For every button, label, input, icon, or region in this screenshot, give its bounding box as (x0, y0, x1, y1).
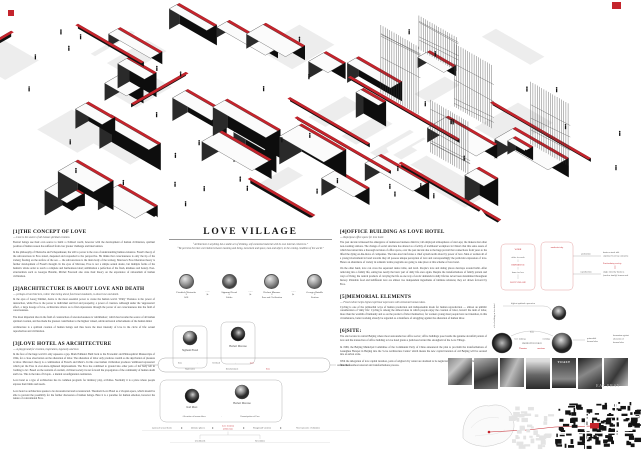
flow-person-name: Karl Marx (187, 406, 199, 409)
flow-person-name: Herbert Marcuse (233, 402, 251, 405)
body-paragraph: Cycling is one of the primordial ways of… (340, 306, 487, 322)
section-subtitle: --- A playground for creation, inspirati… (13, 348, 155, 351)
body-paragraph: Eternal beings use their own source to b… (13, 241, 155, 249)
toast-poster-photo: TOAST (552, 358, 576, 388)
flow-label: PRODUCTIVE FORCE (522, 343, 542, 345)
flow-label: production (581, 254, 591, 256)
arrow-right-icon: → (196, 363, 198, 365)
section-love-and-death: [2]ARCHITECTURE IS ABOUT LOVE AND DEATH … (13, 286, 155, 334)
presentation-board: [1]THE CONCEPT OF LOVE --- Love is the s… (0, 0, 641, 452)
concept-flowchart: Sigmund Freud Herbert Marcuse Eros → Civ… (140, 316, 352, 452)
film-still-photo (526, 358, 550, 389)
side-label: office building as love hotel (493, 303, 496, 328)
flow-label: Repression (185, 368, 196, 370)
flow-label: Playground vacation (253, 427, 272, 430)
body-paragraph: In the face of the huge world it only sq… (13, 353, 155, 376)
flow-label: Alienation of human labor (182, 415, 205, 418)
body-paragraph: In the philosophy of Nietzsche and Schop… (13, 251, 155, 278)
work-box-title: WORK (515, 249, 522, 251)
philosopher-concept: Erotism (311, 296, 319, 299)
flow-label: primordial (587, 338, 597, 340)
flow-label: Non-repressive civilization (296, 428, 321, 430)
page-title: LOVE VILLAGE (163, 227, 338, 237)
flow-person-name: Herbert Marcuse (229, 345, 247, 348)
flow-label: Eros (530, 332, 534, 334)
quote-block: “Architecture is anything but a stable a… (177, 243, 324, 251)
city-box-title: modernist city (551, 247, 564, 249)
section-heading: [5]MEMORIAL ELEMENTS (340, 294, 487, 300)
flow-output: human labor (613, 342, 624, 344)
flow-output: employed team-up enterprise (603, 255, 629, 257)
flow-label: Revolution (255, 441, 266, 443)
flow-label: working (542, 338, 550, 341)
flow-label: Civilized (212, 363, 221, 365)
work-item: home for love (512, 271, 524, 274)
flow-output: (nuclear family) homosexual (603, 274, 629, 277)
work-item: office for work (511, 256, 525, 259)
section-heading: [3]LOVE HOTEL AS ARCHITECTURE (13, 341, 155, 347)
section-heading: [4]OFFICE BUILDING AS LOVE HOTEL (340, 229, 487, 235)
flow-output: humanism against (613, 334, 629, 337)
philosopher-concept: Libido (226, 296, 232, 299)
section-heading: [1]THE CONCEPT OF LOVE (13, 229, 155, 235)
flow-label-red: Post-industry society (603, 263, 622, 265)
section-love-hotel: [3]LOVE HOTEL AS ARCHITECTURE --- A play… (13, 341, 155, 401)
arrow-right-icon: ▶ (212, 427, 214, 430)
flow-label: intimate spheres (191, 428, 205, 430)
section-subtitle: --- perhaps all architecture, rather tha… (13, 293, 155, 296)
marx-portrait (185, 389, 199, 403)
arrow-right-icon: → (220, 416, 222, 418)
work-city-diagram: office building as love hotel WORK offic… (489, 236, 641, 368)
flow-label: Eros (178, 363, 182, 365)
section-heading: [2]ARCHITECTURE IS ABOUT LOVE AND DEATH (13, 286, 155, 292)
flow-label: human labor (587, 341, 598, 343)
marcuse-portrait-2 (235, 385, 249, 399)
film-still-photo (500, 358, 524, 387)
flow-label: Emancipation of Eros (240, 415, 259, 418)
flow-person-name: Sigmund Freud (182, 349, 199, 352)
flow-label-red: architecture (223, 429, 233, 431)
section-subtitle: --- Repurpose office space for love hote… (340, 236, 487, 239)
work-item-red: REPRODUCE (511, 265, 525, 267)
flow-label: reproduction (580, 272, 592, 274)
title-rule (169, 239, 332, 240)
love-making-photo (492, 333, 512, 353)
body-paragraph: In the eyes of Georg Simmel, desire is t… (13, 298, 155, 314)
body-paragraph: Love hotel as a type of architecture has… (13, 379, 155, 387)
spirit-label: highest spiritual expression (511, 302, 536, 305)
right-text-column: [4]OFFICE BUILDING AS LOVE HOTEL --- Rep… (340, 229, 487, 375)
flow-output: alienation of (613, 337, 624, 340)
film-still-photo (448, 358, 472, 385)
philosopher-row: Friedrich Nietzsche ▼ Will ⋯⋯▶ Sigmund F… (168, 274, 333, 299)
body-paragraph: The past decade witnessed the emergence … (340, 241, 487, 264)
flow-label: Livelihoods (195, 441, 206, 443)
philosopher-concept: Eros and Civilization (262, 296, 282, 299)
philosopher-freud: Sigmund Freud ▼ Libido (211, 274, 247, 299)
body-paragraph: Architecture is a spiritual creation of … (13, 326, 155, 334)
film-still-photo (474, 358, 498, 389)
work-item-red: LOVE VILLAGE (510, 281, 526, 284)
flow-label-red: Love location (222, 426, 235, 428)
section-office-love-hotel: [4]OFFICE BUILDING AS LOVE HOTEL --- Rep… (340, 229, 487, 287)
flow-label: love making (515, 338, 527, 341)
body-paragraph: The site locates in central Beijing wher… (340, 335, 487, 343)
photo-caption: EAT PRAY (596, 383, 620, 388)
isometric-illustration (0, 0, 641, 233)
film-still-photo (604, 358, 628, 386)
flow-label-red: emotions (537, 348, 545, 350)
section-memorial-elements: [5]MEMORIAL ELEMENTS --- Fixed culture h… (340, 294, 487, 322)
arrow-right-icon: → (234, 363, 236, 365)
arrow-right-icon: ▶ (181, 427, 183, 430)
site-maps (455, 400, 641, 452)
statue-photo (552, 306, 566, 320)
portrait-photo (222, 274, 237, 289)
arrow-right-icon: ▶ (280, 427, 282, 430)
poster-title: TOAST (558, 360, 571, 388)
portrait-photo (179, 274, 194, 289)
body-paragraph: In 1969, the Beijing Municipal Committee… (340, 346, 487, 358)
district-outline-map (463, 405, 514, 446)
arrow-right-icon: ▶ (243, 427, 245, 430)
section-heading: [6]SITE: (340, 328, 487, 334)
flow-label-red: Love (250, 363, 255, 365)
left-text-column: [1]THE CONCEPT OF LOVE --- Love is the s… (13, 229, 155, 408)
philosopher-bataille: Georges Bataille ▼ Erotism (297, 274, 333, 299)
center-column: LOVE VILLAGE “Architecture is anything b… (163, 227, 338, 251)
philosopher-marcuse: Herbert Marcuse ▼ Eros and Civilization (254, 274, 290, 299)
flow-label-red: Eros (266, 368, 270, 370)
flow-output: single minority business (603, 271, 624, 274)
flow-label: repressed sexual desire (152, 428, 172, 430)
philosopher-nietzsche: Friedrich Nietzsche ▼ Will (168, 274, 204, 299)
portrait-photo (307, 274, 322, 289)
quote-line: “We perceive the inter-correlation betwe… (177, 247, 324, 251)
flow-label: Entertainment (226, 368, 239, 370)
section-subtitle: --- Love is the source of all human spir… (13, 236, 155, 239)
flow-output: business trade talk (603, 252, 620, 254)
section-subtitle: --- Fixed culture helps highest spiritua… (340, 301, 487, 304)
philosopher-concept: Will (184, 296, 188, 299)
flow-label-red: Thanatos (519, 348, 527, 350)
marcuse-portrait (231, 327, 245, 341)
body-paragraph: The most important idea in the field of … (13, 316, 155, 324)
working-photo (552, 333, 572, 353)
freud-portrait (183, 331, 197, 345)
body-paragraph: Love hotel as architecture speaks to be … (13, 390, 155, 402)
section-concept-of-love: [1]THE CONCEPT OF LOVE --- Love is the s… (13, 229, 155, 279)
portrait-photo (264, 274, 279, 289)
body-paragraph: On the other hand, love can cross the se… (340, 267, 487, 287)
figure-ground-map (555, 402, 641, 450)
